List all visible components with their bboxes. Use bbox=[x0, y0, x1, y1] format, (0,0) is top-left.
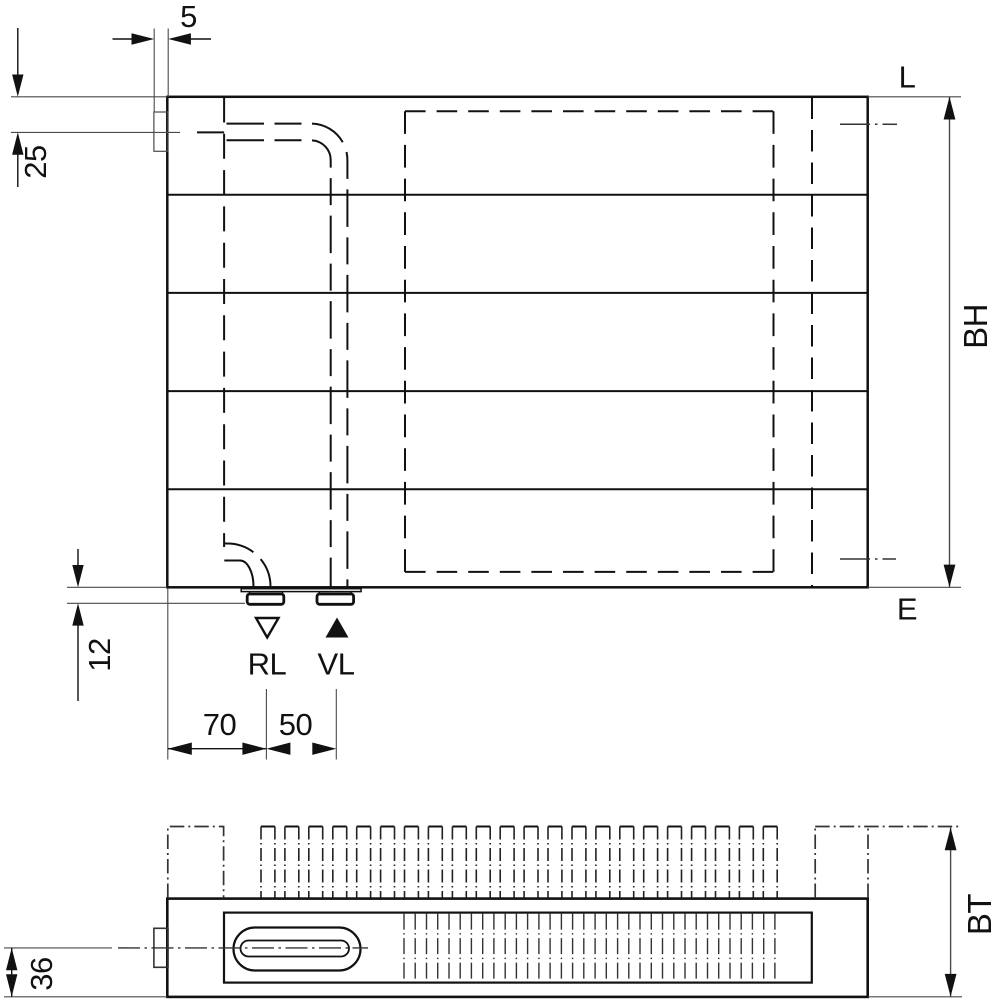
svg-text:RL: RL bbox=[248, 647, 287, 682]
svg-text:VL: VL bbox=[318, 647, 355, 682]
svg-text:25: 25 bbox=[18, 145, 53, 178]
svg-text:70: 70 bbox=[203, 707, 237, 742]
svg-text:BH: BH bbox=[957, 304, 994, 349]
svg-text:50: 50 bbox=[279, 707, 313, 742]
svg-text:36: 36 bbox=[24, 957, 59, 990]
svg-text:12: 12 bbox=[82, 638, 117, 671]
svg-text:L: L bbox=[899, 60, 916, 95]
svg-text:E: E bbox=[897, 592, 917, 627]
svg-text:BT: BT bbox=[961, 894, 998, 936]
svg-text:5: 5 bbox=[180, 0, 197, 34]
